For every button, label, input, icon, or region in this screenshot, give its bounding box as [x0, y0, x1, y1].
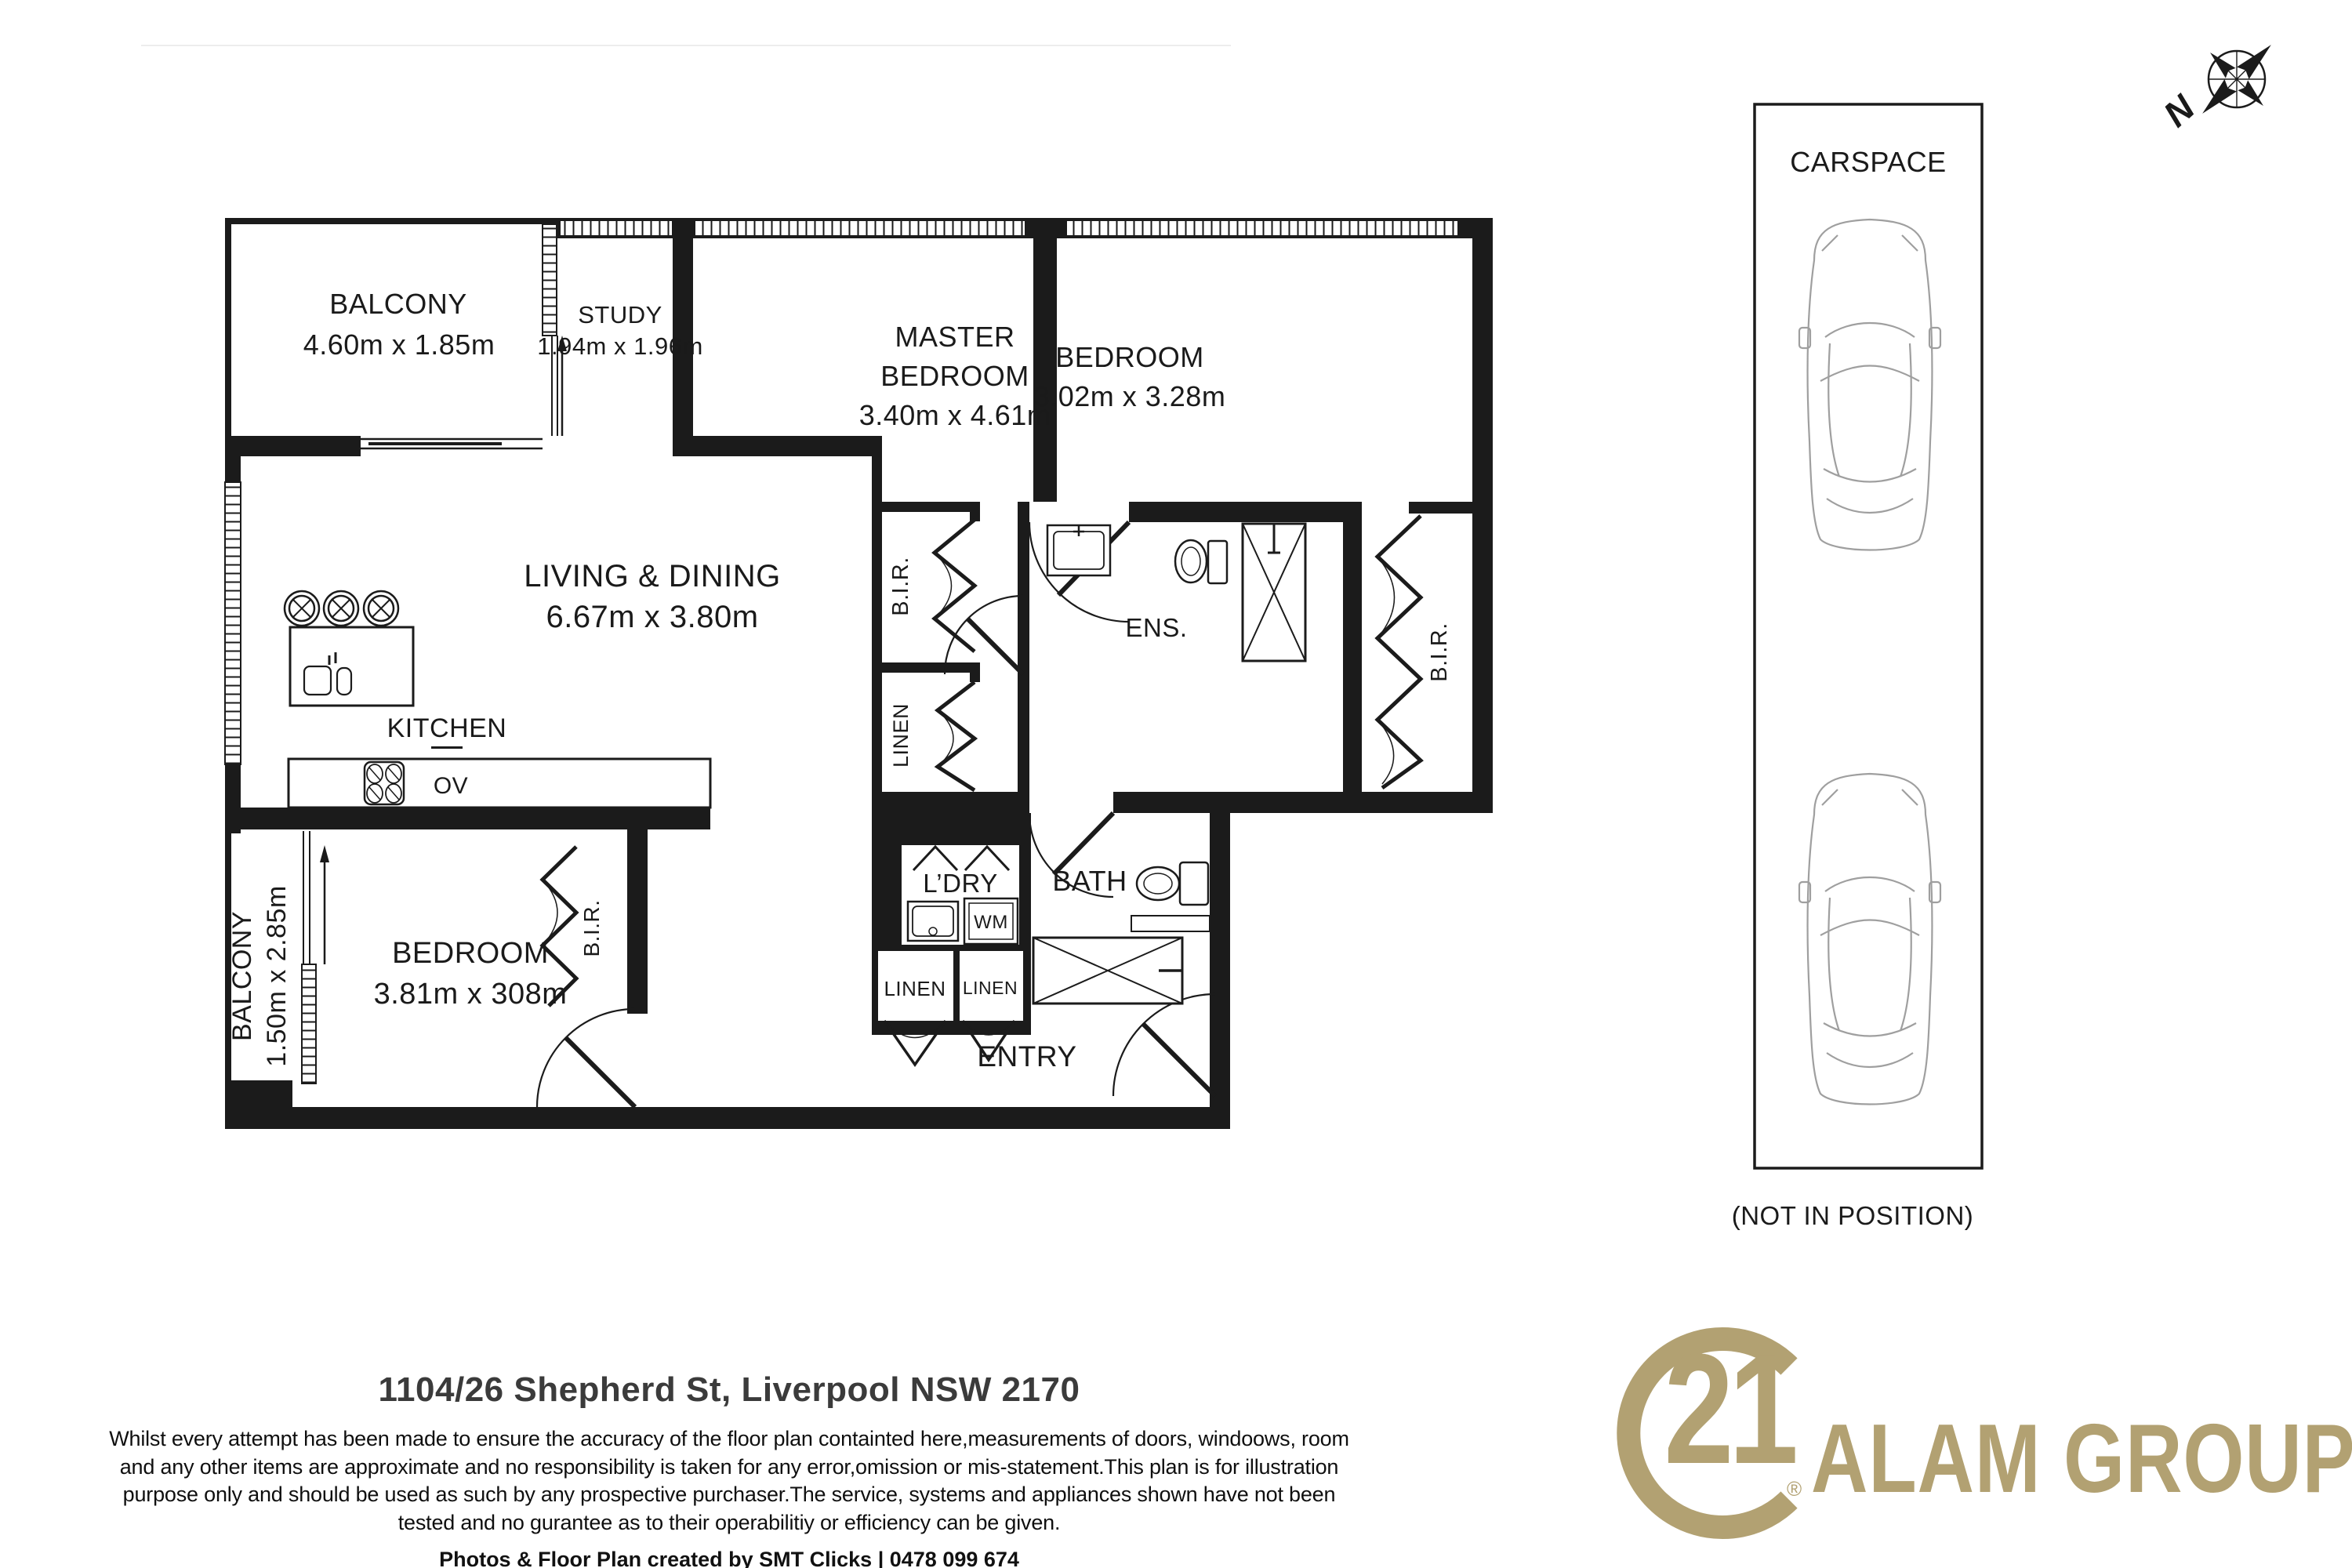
label-washing-machine: WM: [974, 912, 1008, 933]
slider-track-bedroom3: [303, 831, 325, 964]
door-arc-bedroom3: [537, 1009, 635, 1107]
vanity-sink-icon-ens: [1047, 525, 1110, 575]
print-hairline: [141, 45, 1231, 46]
kitchen-counter: [289, 759, 710, 808]
label-balcony-side-dims: 1.50m x 2.85m: [262, 885, 292, 1066]
window-bedroom: [1066, 220, 1458, 236]
wardrobe-zigzag-bedroom2: [1377, 516, 1421, 788]
label-balcony-top: BALCONY: [329, 288, 467, 320]
label-not-in-position: (NOT IN POSITION): [1732, 1201, 1974, 1230]
vanity-shelf-bath: [1131, 916, 1210, 931]
disclaimer-line-2: and any other items are approximate and …: [59, 1454, 1399, 1482]
sink-icon: [304, 666, 331, 695]
shower-icon: [1243, 524, 1305, 661]
photographer-credit: Photos & Floor Plan created by SMT Click…: [180, 1548, 1278, 1568]
carspace: CARSPACE (NOT IN POSITION): [1732, 104, 1982, 1230]
window-living: [225, 482, 241, 764]
label-kitchen: KITCHEN: [387, 713, 507, 743]
label-bath: BATH: [1052, 865, 1127, 897]
label-carspace: CARSPACE: [1790, 146, 1946, 178]
label-linen-left: LINEN: [884, 977, 946, 1000]
group-name: ALAM GROUP: [1811, 1403, 2352, 1515]
island-bench: [290, 627, 413, 706]
label-bir-master: B.I.R.: [888, 557, 913, 616]
label-bir-bedroom3: B.I.R.: [579, 899, 604, 956]
label-bedroom3: BEDROOM: [392, 937, 549, 970]
disclaimer-line-3: purpose only and should be used as such …: [59, 1481, 1399, 1509]
kitchen-underline: [431, 746, 463, 749]
compass-north-label: N: [2155, 86, 2202, 134]
disclaimer-line-4: tested and no gurantee as to their opera…: [59, 1509, 1399, 1537]
label-balcony-top-dims: 4.60m x 1.85m: [303, 328, 495, 361]
label-balcony-side: BALCONY: [227, 911, 257, 1041]
label-ensuite: ENS.: [1125, 613, 1187, 642]
slider-arrow-bedroom3: [320, 845, 329, 862]
carspace-outline: [1755, 104, 1982, 1168]
downlight-icons: [285, 591, 398, 626]
registered-mark: ®: [1787, 1477, 1802, 1501]
window-balcony-bedroom: [302, 964, 316, 1083]
window-balcony-study: [543, 224, 557, 336]
label-laundry: L’DRY: [923, 869, 997, 898]
label-living-dims: 6.67m x 3.80m: [546, 600, 758, 634]
label-linen-right: LINEN: [963, 978, 1018, 998]
label-bedroom3-dims: 3.81m x 308m: [374, 978, 568, 1011]
label-master-1: MASTER: [895, 321, 1014, 353]
floor-plan-page: BALCONY 4.60m x 1.85m STUDY 1.94m x 1.96…: [0, 0, 2352, 1568]
bathtub-icon: [1033, 938, 1182, 1004]
label-entry: ENTRY: [977, 1040, 1076, 1073]
door-arc-entry: [1113, 994, 1215, 1096]
compass-rose-icon: N: [2155, 18, 2297, 140]
window-master: [695, 220, 1025, 236]
label-bir-bedroom2: B.I.R.: [1427, 622, 1452, 682]
cooktop-icon: [365, 762, 404, 804]
laundry-tub-icon: [908, 902, 958, 941]
century21-alam-group-logo: 21 ® ALAM GROUP: [1601, 1322, 2338, 1557]
label-master-2: BEDROOM: [880, 360, 1029, 392]
label-study-dims: 1.94m x 1.96m: [537, 332, 703, 360]
toilet-icon-ens: [1175, 540, 1227, 583]
toilet-icon-bath: [1137, 862, 1208, 905]
label-study: STUDY: [578, 301, 662, 328]
label-oven: OV: [434, 773, 468, 799]
label-bedroom2: BEDROOM: [1055, 341, 1204, 373]
c21-number: 21: [1664, 1322, 1795, 1497]
label-linen-hall: LINEN: [889, 703, 913, 768]
wardrobe-zigzag-master: [935, 520, 975, 652]
sliding-door-balcony-top: [361, 439, 543, 448]
label-living: LIVING & DINING: [524, 559, 781, 593]
label-master-dims: 3.40m x 4.61m: [859, 399, 1051, 431]
disclaimer-line-1: Whilst every attempt has been made to en…: [59, 1425, 1399, 1454]
label-bedroom2-dims: 3.02m x 3.28m: [1034, 380, 1226, 412]
disclaimer-text: Whilst every attempt has been made to en…: [59, 1425, 1399, 1537]
property-address: 1104/26 Shepherd St, Liverpool NSW 2170: [180, 1370, 1278, 1410]
wardrobe-zigzag-linen-hall: [938, 682, 975, 790]
window-study: [560, 220, 673, 236]
